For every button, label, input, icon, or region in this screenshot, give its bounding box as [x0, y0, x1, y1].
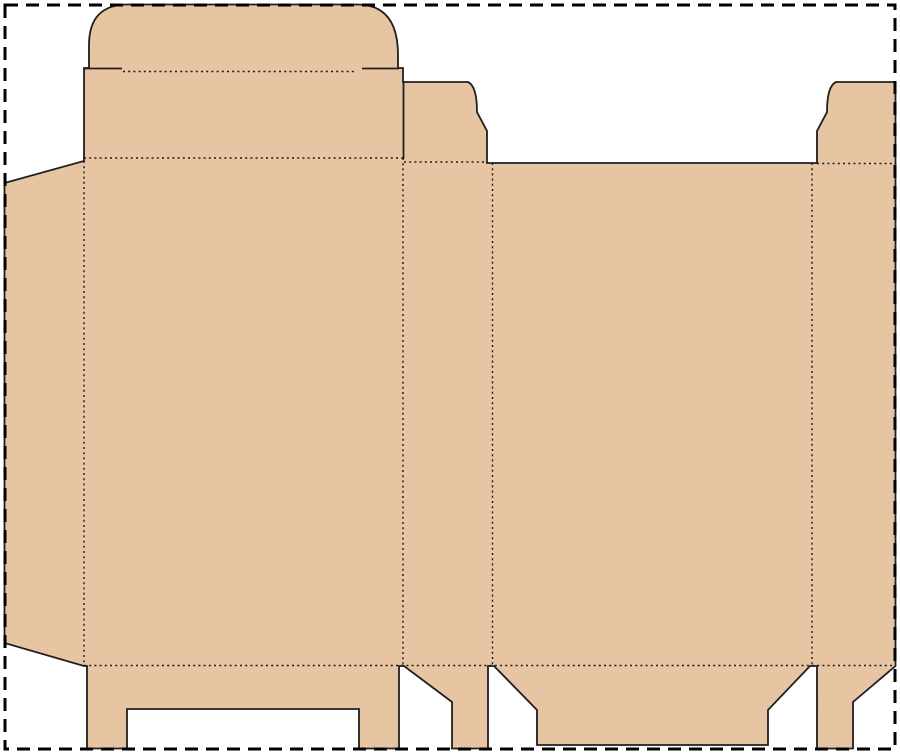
- artboard: [0, 0, 900, 753]
- dieline-svg: [0, 0, 900, 753]
- dieline-outline: [5, 5, 896, 749]
